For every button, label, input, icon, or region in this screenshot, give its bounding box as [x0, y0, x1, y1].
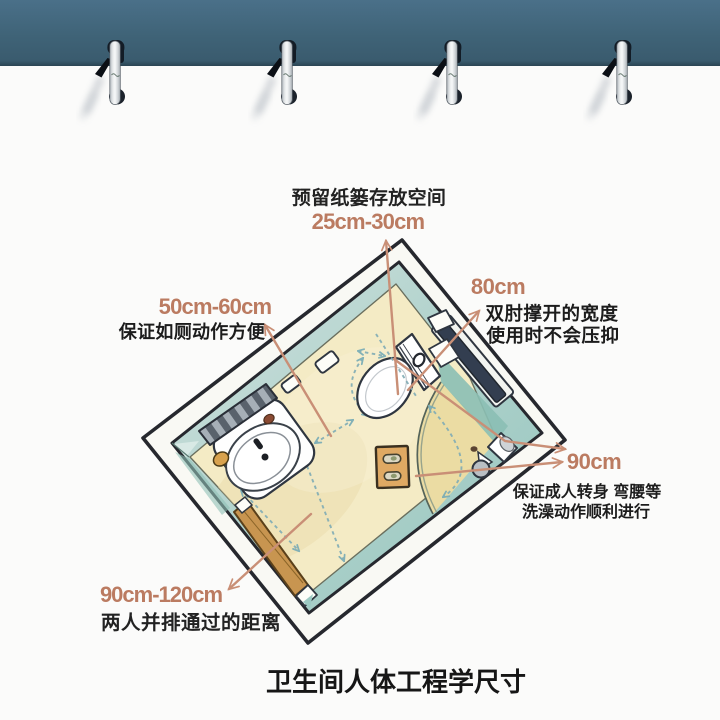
- svg-text:保证如厕动作方便: 保证如厕动作方便: [118, 321, 266, 342]
- svg-text:80cm: 80cm: [471, 274, 525, 299]
- svg-text:两人并排通过的距离: 两人并排通过的距离: [101, 611, 281, 634]
- svg-text:保证成人转身 弯腰等: 保证成人转身 弯腰等: [512, 482, 661, 501]
- svg-text:预留纸篓存放空间: 预留纸篓存放空间: [292, 186, 446, 209]
- svg-text:使用时不会压抑: 使用时不会压抑: [485, 325, 619, 346]
- svg-text:卫生间人体工程学尺寸: 卫生间人体工程学尺寸: [266, 667, 526, 697]
- svg-text:90cm-120cm: 90cm-120cm: [100, 582, 223, 607]
- svg-text:90cm: 90cm: [567, 449, 621, 474]
- svg-text:洗澡动作顺利进行: 洗澡动作顺利进行: [522, 502, 650, 521]
- svg-text:25cm-30cm: 25cm-30cm: [312, 209, 425, 234]
- svg-text:双肘撑开的宽度: 双肘撑开的宽度: [485, 303, 618, 324]
- svg-text:50cm-60cm: 50cm-60cm: [159, 294, 272, 319]
